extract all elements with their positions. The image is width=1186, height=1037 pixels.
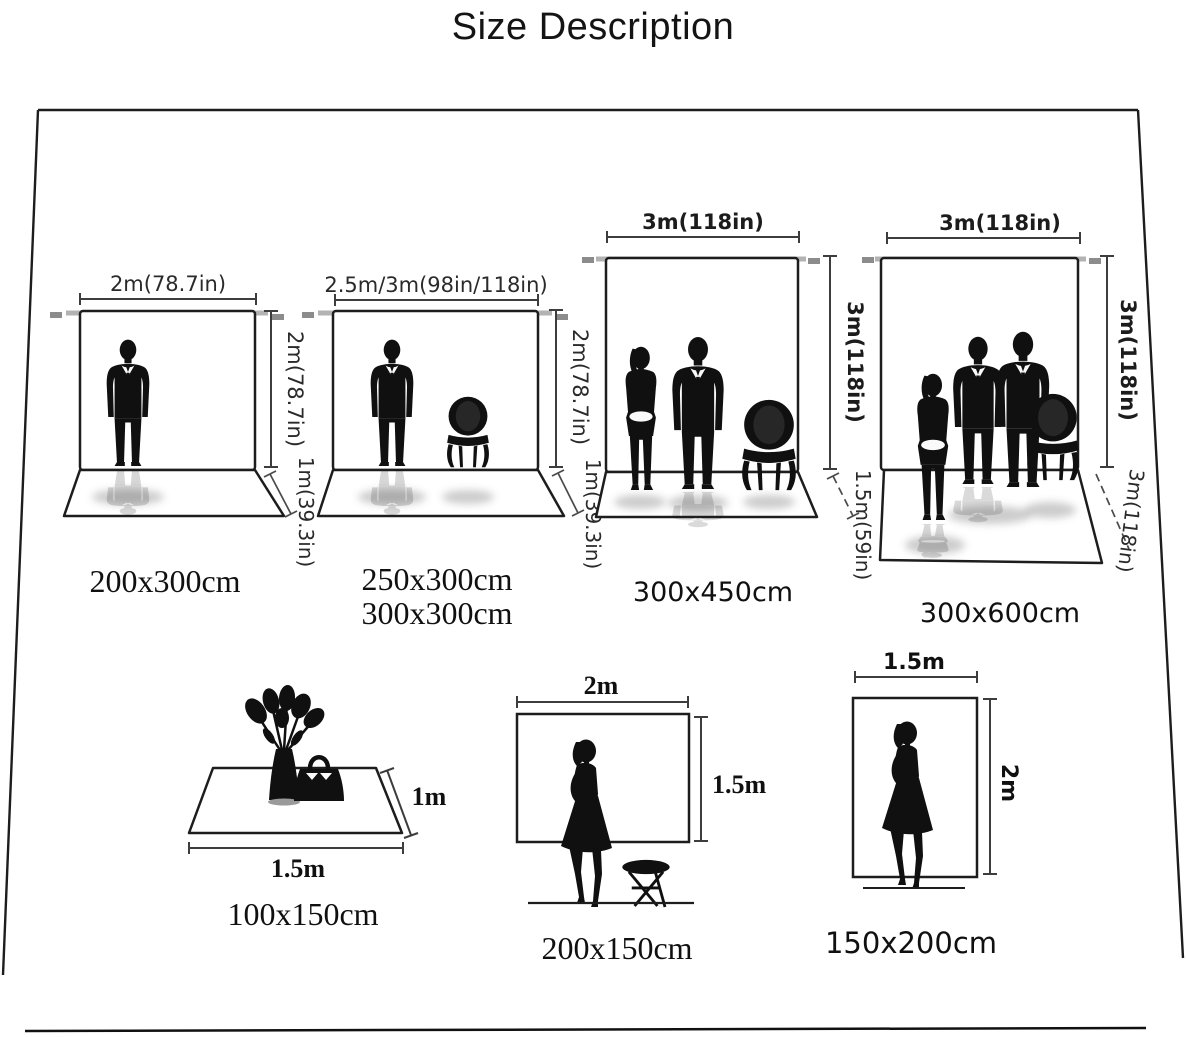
height-dimension bbox=[823, 256, 837, 469]
size-label: 200x150cm bbox=[541, 930, 692, 966]
backdrop-300x450-group: 3m(118in) 3m(118in) 1.5m(59in) 300x450cm bbox=[582, 210, 875, 608]
depth-label: 1m bbox=[412, 782, 447, 811]
backdrop-200x300-group: 2m(78.7in) 2m(78.7in) 1m(39.3in) 200x300… bbox=[50, 272, 318, 599]
backdrop-floor bbox=[318, 470, 564, 516]
backdrop-150x200-group: 1.5m 2m 150x200cm bbox=[825, 650, 1021, 960]
width-label: 2m(78.7in) bbox=[110, 272, 226, 296]
backdrop-300x600-group: 3m(118in) 3m(118in) 3m(118in) 300x600cm bbox=[862, 211, 1149, 629]
floor-label: 3m(118in) bbox=[1113, 468, 1150, 574]
height-label: 3m(118in) bbox=[843, 301, 867, 423]
height-label: 1.5m bbox=[712, 770, 767, 799]
height-dimension bbox=[264, 311, 278, 467]
size-label: 100x150cm bbox=[227, 896, 378, 932]
floor-label: 1.5m(59in) bbox=[851, 470, 875, 581]
height-dimension bbox=[549, 310, 563, 467]
size-label: 150x200cm bbox=[825, 926, 997, 960]
size-label: 200x300cm bbox=[89, 563, 240, 599]
size-label: 250x300cm bbox=[361, 561, 512, 597]
size-label: 300x450cm bbox=[633, 577, 793, 608]
handbag-silhouette bbox=[294, 757, 344, 801]
size-chart-canvas: 2m(78.7in) 2m(78.7in) 1m(39.3in) 200x300… bbox=[0, 0, 1186, 1037]
rug-100x150-group: 1m 1.5m 100x150cm bbox=[189, 684, 447, 932]
size-description-infographic: Size Description bbox=[0, 0, 1186, 1037]
room-right-edge bbox=[1138, 110, 1183, 958]
height-dimension bbox=[1100, 256, 1114, 467]
size-label: 300x600cm bbox=[920, 598, 1080, 629]
room-left-edge bbox=[3, 110, 38, 975]
width-label: 3m(118in) bbox=[642, 210, 764, 234]
width-label: 1.5m bbox=[271, 854, 326, 883]
width-dimension bbox=[189, 842, 403, 854]
height-label: 3m(118in) bbox=[1116, 299, 1140, 421]
width-label: 2m bbox=[584, 671, 619, 700]
height-dimension bbox=[694, 717, 708, 841]
floor-reflection bbox=[1024, 502, 1076, 518]
floor-label: 1m(39.3in) bbox=[294, 457, 318, 568]
width-label: 2.5m/3m(98in/118in) bbox=[324, 273, 547, 297]
height-dimension bbox=[983, 699, 997, 874]
backdrop-200x150-group: 2m 1.5m 200x150cm bbox=[517, 671, 767, 966]
height-label: 2m bbox=[996, 764, 1021, 802]
width-label: 3m(118in) bbox=[939, 211, 1061, 235]
height-label: 2m(78.7in) bbox=[283, 331, 307, 447]
backdrop-wall bbox=[333, 311, 538, 470]
backdrop-wall bbox=[80, 311, 255, 470]
height-label: 2m(78.7in) bbox=[568, 329, 592, 445]
width-label: 1.5m bbox=[883, 650, 945, 675]
size-label-2: 300x300cm bbox=[361, 595, 512, 631]
bottom-divider-line bbox=[25, 1028, 1146, 1031]
floor-reflection bbox=[614, 495, 666, 509]
stool-silhouette bbox=[622, 860, 670, 907]
backdrop-250x300-group: 2.5m/3m(98in/118in) 2m(78.7in) 1m(39.3in… bbox=[302, 273, 605, 631]
floor-reflection bbox=[743, 495, 795, 509]
floor-reflection bbox=[442, 490, 494, 504]
